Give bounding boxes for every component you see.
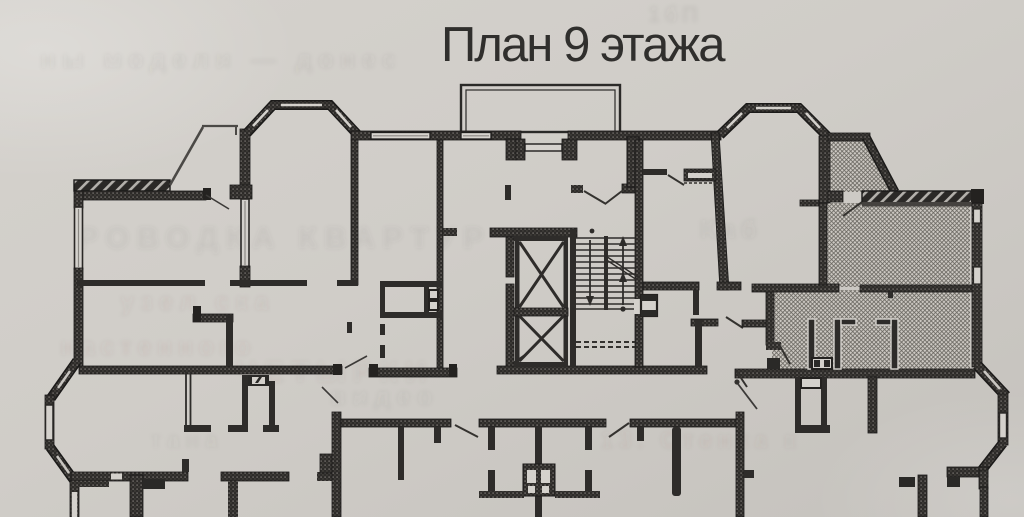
svg-text:ны модели — донес: ны модели — донес (40, 44, 402, 74)
svg-text:РОВОДКА КВАРТУР: РОВОДКА КВАРТУР (78, 222, 491, 255)
svg-text:План 9 этажа: План 9 этажа (441, 18, 727, 72)
svg-text:Каб: Каб (700, 214, 762, 244)
svg-text:13. Стенка к: 13. Стенка к (600, 427, 801, 454)
